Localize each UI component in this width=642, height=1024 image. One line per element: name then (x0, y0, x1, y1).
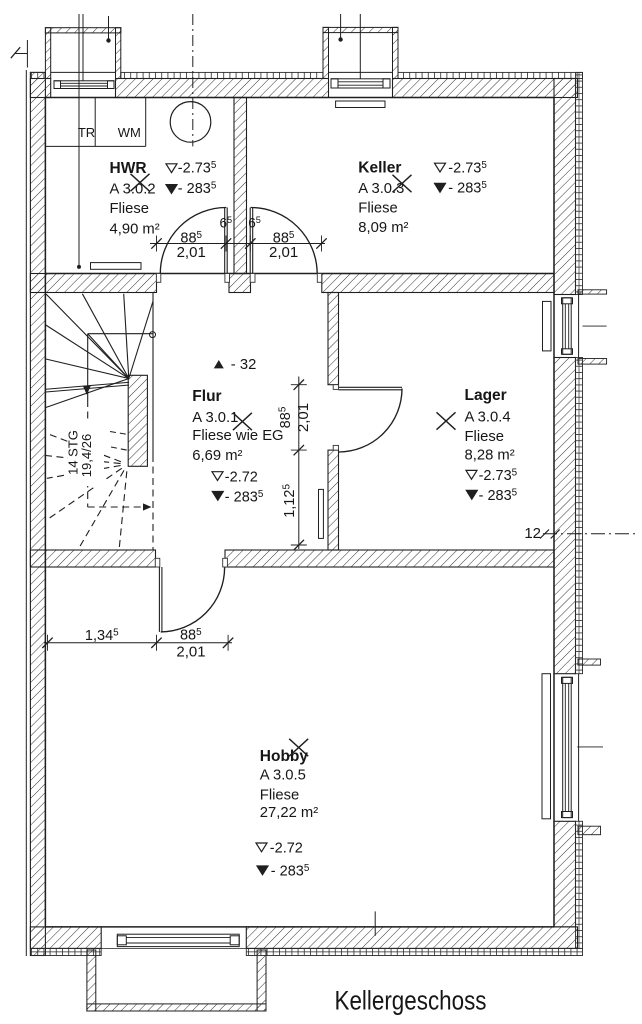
svg-text:6,69 m²: 6,69 m² (192, 448, 242, 464)
svg-text:27,22 m²: 27,22 m² (260, 805, 318, 821)
svg-text:WM: WM (118, 125, 141, 140)
svg-text:-2.72: -2.72 (225, 470, 258, 486)
svg-text:2,01: 2,01 (177, 244, 206, 261)
svg-text:Fliese wie EG: Fliese wie EG (192, 428, 283, 444)
svg-text:2,01: 2,01 (295, 403, 312, 432)
svg-text:HWR: HWR (110, 160, 147, 177)
svg-text:A 3.0.1: A 3.0.1 (192, 410, 238, 426)
svg-text:Fliese: Fliese (358, 201, 397, 217)
svg-text:A 3.0.4: A 3.0.4 (465, 410, 511, 426)
svg-text:8,09 m²: 8,09 m² (358, 220, 408, 236)
svg-text:Fliese: Fliese (260, 787, 299, 803)
svg-text:A 3.0.5: A 3.0.5 (260, 768, 306, 784)
svg-text:2,01: 2,01 (269, 244, 298, 261)
svg-text:Fliese: Fliese (465, 429, 504, 445)
svg-text:Keller: Keller (358, 160, 401, 177)
svg-text:-2.72: -2.72 (270, 840, 303, 856)
svg-text:4,90 m²: 4,90 m² (110, 222, 160, 238)
svg-text:19,4/26: 19,4/26 (79, 434, 94, 477)
svg-text:- 32: - 32 (231, 357, 256, 373)
svg-text:8,28 m²: 8,28 m² (465, 448, 515, 464)
svg-text:Kellergeschoss: Kellergeschoss (335, 985, 487, 1015)
svg-text:12: 12 (524, 525, 541, 542)
svg-text:TR: TR (78, 125, 95, 140)
svg-text:Lager: Lager (465, 387, 507, 404)
svg-text:Flur: Flur (192, 388, 221, 405)
svg-text:A 3.0.3: A 3.0.3 (358, 181, 404, 197)
svg-text:2,01: 2,01 (176, 644, 205, 661)
svg-text:Fliese: Fliese (110, 201, 149, 217)
